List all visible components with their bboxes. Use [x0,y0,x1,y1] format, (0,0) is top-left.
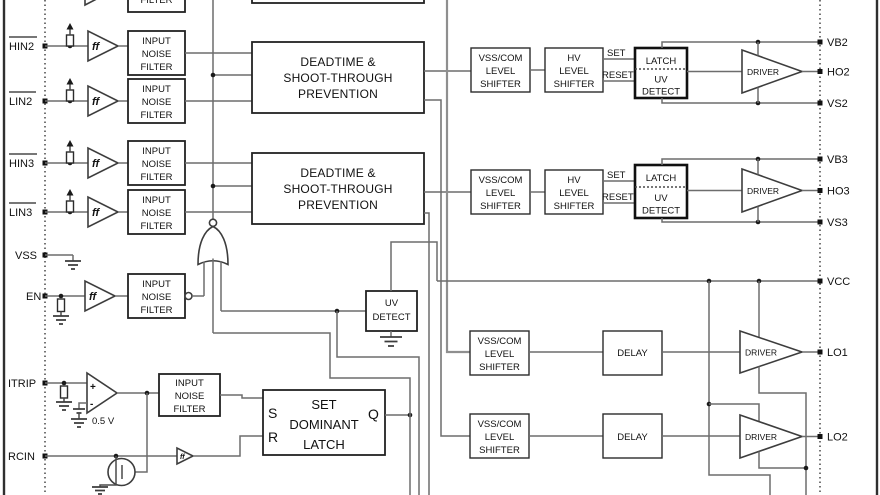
box-label: SET [311,397,336,412]
pin-label-ho2: HO2 [827,67,850,79]
ho2-channel: VSS/COM LEVEL SHIFTER HV LEVEL SHIFTER S… [471,40,818,106]
box-label: FILTER [140,172,172,183]
wire-lo1-com [759,367,806,469]
box-label: VSS/COM [479,175,523,186]
box-label: SHOOT-THROUGH [283,71,392,85]
box-label: DOMINANT [289,417,358,432]
box-label: UV [654,75,668,86]
pullup-resistor [67,152,74,163]
r-input-label: R [268,429,278,445]
vref-source [73,409,85,413]
box-label: UV [385,298,399,309]
box-label: INPUT [142,84,171,95]
shutdown-logic [198,0,252,333]
ground-symbol [71,419,87,427]
pin-label-vb3: VB3 [827,154,848,166]
pullup-resistor [67,35,74,46]
rcin-row: RCIN ff [8,436,263,494]
ground-symbol [92,487,108,494]
box-label: LATCH [646,56,677,67]
box-label: PREVENTION [298,198,378,212]
pin-vs2 [818,101,823,106]
box-label: DEADTIME & [300,55,375,69]
input-row-lin2: LIN2 ff INPUT NOISE FILTER [9,78,252,123]
pullup-arrow [67,23,74,30]
pin-vb2 [818,40,823,45]
pin-lo2 [818,434,823,439]
deadtime-box-partial [252,0,424,3]
wire-phase1-lo1 [447,0,470,352]
pin-label-hin2: HIN2 [9,41,34,53]
pin-vb3 [818,157,823,162]
pin-label-vss: VSS [15,250,37,262]
wire-lo2-com-cropped [759,452,806,495]
driver-label: DRIVER [747,67,779,77]
set-signal-label: SET [607,48,626,59]
box-label: LATCH [303,437,345,452]
pin-ho3 [818,188,823,193]
wire-dt2-lo3-cropped [424,213,429,495]
ground-symbol [65,261,81,269]
q-output-label: Q [368,406,379,422]
vref-label: 0.5 V [92,416,115,427]
input-row-hin2: HIN2 ff INPUT NOISE FILTER [9,23,252,75]
input-buffer-partial [85,0,115,5]
box-label: SHIFTER [554,79,595,90]
box-label: DETECT [642,87,680,98]
cropped-top-row: FILTER [85,0,424,12]
box-label: DELAY [617,348,648,359]
box-label: FILTER [140,305,172,316]
nor-output-bubble [209,219,216,226]
pin-label-lo1: LO1 [827,347,848,359]
box-label: LATCH [646,173,677,184]
wire-reset-input [193,436,263,456]
pullup-resistor [67,201,74,212]
pin-vs3 [818,220,823,225]
wire-uv-vcc [391,242,437,291]
hysteresis-glyph: ff [180,454,185,461]
driver-label: DRIVER [745,348,777,358]
box-label: INPUT [175,378,204,389]
pin-lo1 [818,350,823,355]
junction-dot [211,184,216,189]
box-label: SHOOT-THROUGH [283,182,392,196]
box-label: HV [567,175,581,186]
box-label: INPUT [142,195,171,206]
pin-label-vs2: VS2 [827,98,848,110]
ground-symbol [56,402,72,410]
junction-dot [59,294,64,299]
inverter-bubble [185,293,192,300]
box-label: LEVEL [486,188,516,199]
pin-label-vs3: VS3 [827,217,848,229]
box-label: FILTER [140,221,172,232]
ground-symbol [53,316,69,324]
box-label: HV [567,53,581,64]
box-label: INPUT [142,146,171,157]
reset-signal-label: RESET [602,70,634,81]
box-label: VSS/COM [478,419,522,430]
pullup-arrow [67,78,74,85]
pin-label-itrip: ITRIP [8,378,36,390]
set-signal-label: SET [607,170,626,181]
box-label: LEVEL [559,188,589,199]
driver-label: DRIVER [747,186,779,196]
pin-label-ho3: HO3 [827,186,850,198]
driver-label: DRIVER [745,432,777,442]
uv-detect-box [366,291,417,331]
s-input-label: S [268,405,277,421]
deadtime-block-2: DEADTIME & SHOOT-THROUGH PREVENTION [252,153,424,224]
deadtime-block-1: DEADTIME & SHOOT-THROUGH PREVENTION [252,42,424,113]
pullup-resistor [67,90,74,101]
box-label: INPUT [142,279,171,290]
pin-label-hin3: HIN3 [9,158,34,170]
box-label: LEVEL [559,66,589,77]
box-label: VSS/COM [479,53,523,64]
box-label: NOISE [142,159,172,170]
schematic-canvas: FILTER HIN2 ff INPUT NOISE FILTER [0,0,880,495]
reset-signal-label: RESET [602,192,634,203]
lo2-channel: VSS/COM LEVEL SHIFTER DELAY DRIVER [470,414,818,495]
pullup-arrow [67,189,74,196]
box-label: SHIFTER [479,445,520,456]
junction-dot [62,381,67,386]
box-label: DETECT [642,206,680,217]
pin-label-lo2: LO2 [827,432,848,444]
box-label: VSS/COM [478,336,522,347]
box-label: FILTER [140,62,172,73]
pin-label-lin2: LIN2 [9,96,32,108]
pin-label-lin3: LIN3 [9,207,32,219]
box-label: LEVEL [485,349,515,360]
box-label: NOISE [142,292,172,303]
box-label: LEVEL [485,432,515,443]
pullup-arrow [67,140,74,147]
filter-label-partial: FILTER [140,0,172,6]
wire-set-input [220,395,263,398]
pin-vcc [818,279,823,284]
box-label: SHIFTER [554,201,595,212]
en-row: EN ff INPUT NOISE FILTER [26,274,204,324]
box-label: SHIFTER [480,201,521,212]
right-pins: VB2 HO2 VS2 VB3 HO3 VS3 VCC LO1 LO2 [818,37,851,444]
ho3-channel: VSS/COM LEVEL SHIFTER HV LEVEL SHIFTER S… [471,157,818,225]
pin-label-en: EN [26,291,41,303]
box-label: NOISE [142,208,172,219]
box-label: DEADTIME & [300,166,375,180]
box-label: FILTER [173,404,205,415]
pin-label-vb2: VB2 [827,37,848,49]
junction-dot [211,73,216,78]
box-label: SHIFTER [480,79,521,90]
box-label: LEVEL [486,66,516,77]
box-label: DELAY [617,432,648,443]
junction-dot [804,466,809,471]
block-diagram: FILTER HIN2 ff INPUT NOISE FILTER [0,0,880,495]
box-label: DETECT [373,312,411,323]
box-label: NOISE [142,49,172,60]
pulldown-resistor [58,299,65,312]
pulldown-resistor [61,386,68,398]
minus-sign: - [90,399,93,410]
box-label: UV [654,193,668,204]
pin-label-vcc: VCC [827,276,850,288]
box-label: NOISE [142,97,172,108]
box-label: NOISE [175,391,205,402]
plus-sign: + [90,382,96,393]
box-label: INPUT [142,36,171,47]
pin-label-rcin: RCIN [8,451,35,463]
input-row-hin3: HIN3 ff INPUT NOISE FILTER [9,140,252,185]
vcc-rail [437,279,818,495]
box-label: SHIFTER [479,362,520,373]
pin-ho2 [818,69,823,74]
ground-symbol [380,337,402,346]
box-label: PREVENTION [298,87,378,101]
wire-vcc-trunk-cropped [709,281,770,495]
box-label: FILTER [140,110,172,121]
vss-row: VSS [15,250,81,269]
uv-detect-center: UV DETECT [221,242,437,495]
